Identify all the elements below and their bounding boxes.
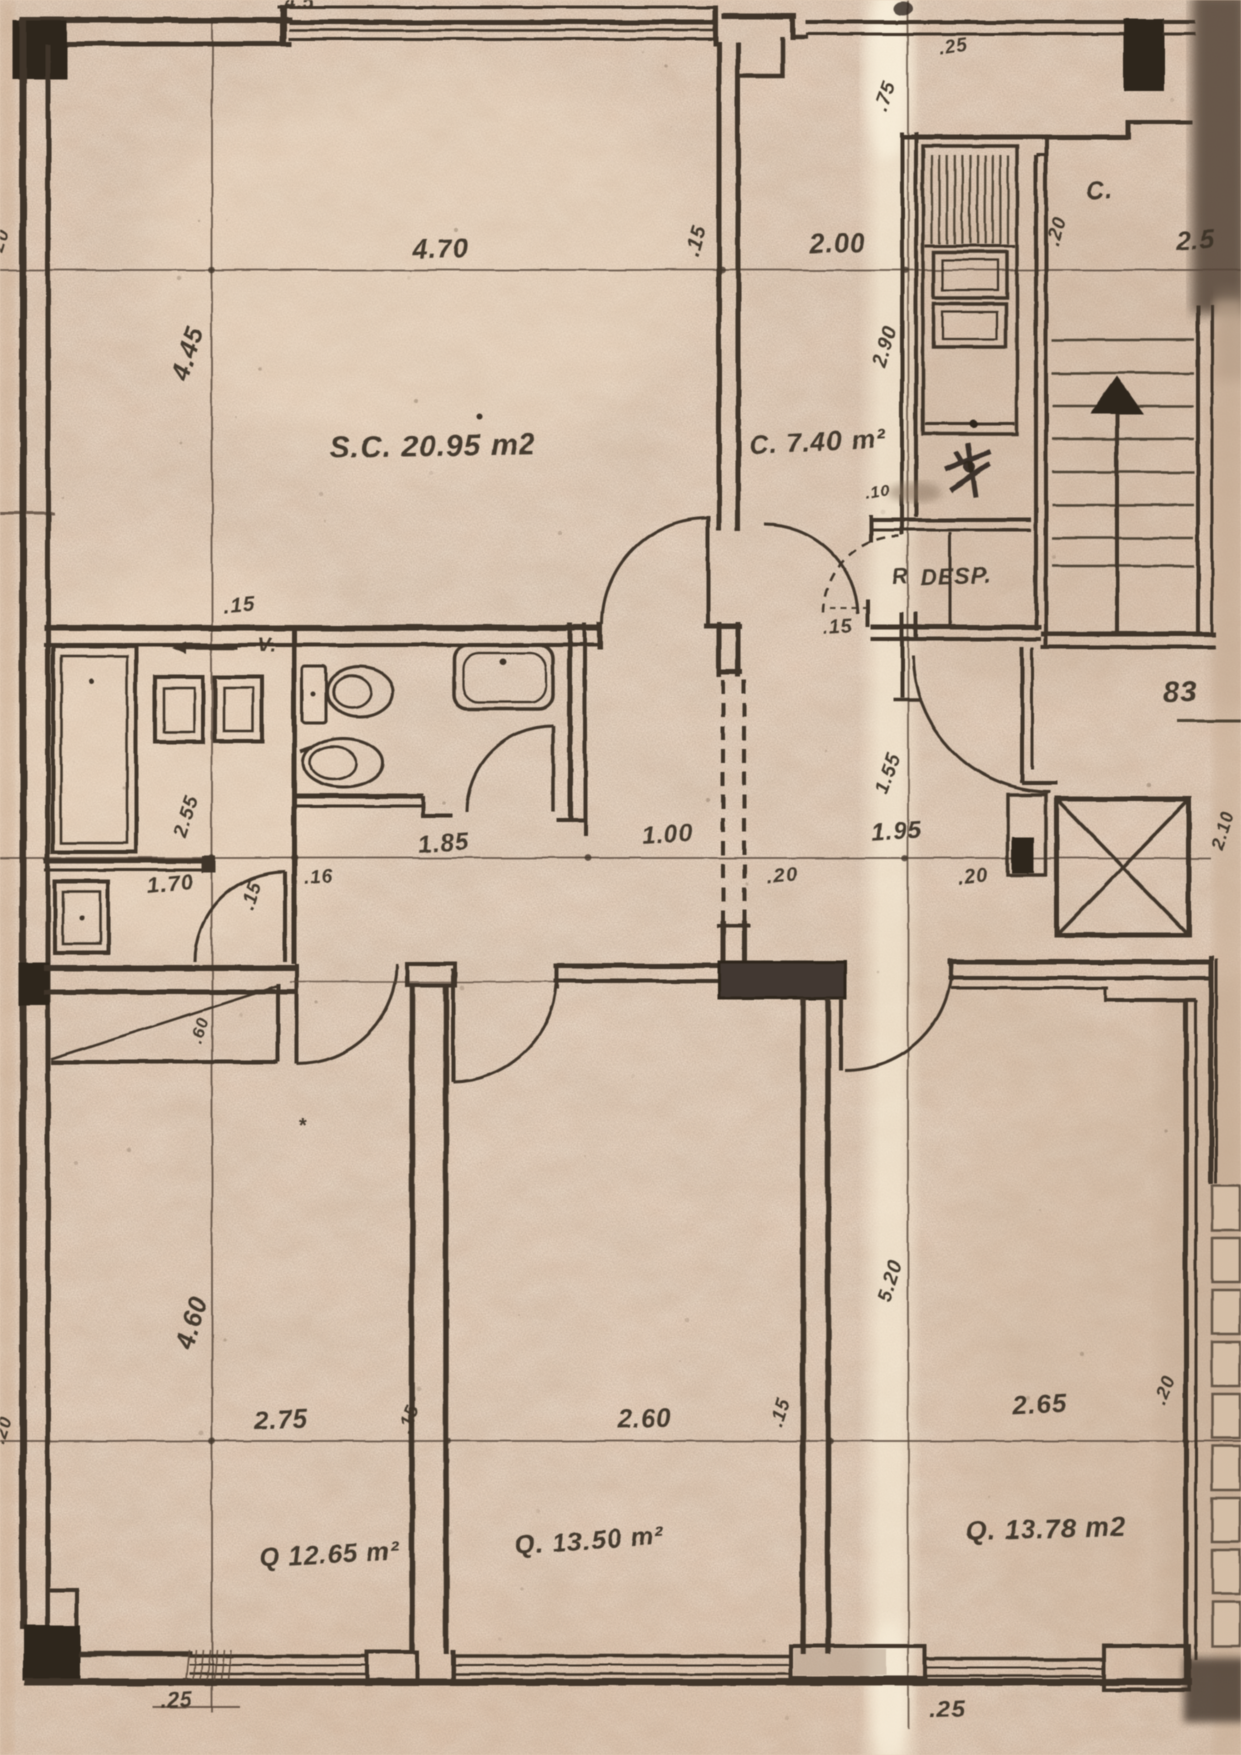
svg-text:.15: .15 xyxy=(822,615,854,639)
svg-text:2.65: 2.65 xyxy=(1010,1388,1067,1421)
svg-text:2.75: 2.75 xyxy=(252,1403,309,1435)
svg-text:R: R xyxy=(892,563,910,589)
svg-text:.25: .25 xyxy=(937,34,969,59)
svg-text:4.5: 4.5 xyxy=(283,0,316,14)
svg-text:Q. 13.78 m2: Q. 13.78 m2 xyxy=(965,1511,1127,1547)
svg-text:.25: .25 xyxy=(159,1686,194,1713)
svg-text:V.: V. xyxy=(257,635,276,657)
svg-text:83: 83 xyxy=(1162,675,1199,710)
svg-text:2.60: 2.60 xyxy=(616,1402,673,1434)
svg-text:2.5: 2.5 xyxy=(1174,224,1216,256)
svg-text:*: * xyxy=(299,1115,308,1137)
svg-text:4.70: 4.70 xyxy=(411,233,470,265)
svg-text:S.C. 20.95 m2: S.C. 20.95 m2 xyxy=(329,428,536,465)
svg-text:.15: .15 xyxy=(223,593,257,618)
svg-text:1.70: 1.70 xyxy=(146,869,195,899)
svg-text:C.: C. xyxy=(1085,176,1114,206)
svg-text:.16: .16 xyxy=(303,866,334,889)
svg-text:.20: .20 xyxy=(957,865,990,890)
svg-text:1.00: 1.00 xyxy=(642,820,694,850)
svg-text:2.00: 2.00 xyxy=(808,227,867,259)
svg-text:.25: .25 xyxy=(929,1695,966,1723)
svg-text:DESP.: DESP. xyxy=(920,562,992,590)
svg-text:1.95: 1.95 xyxy=(870,816,922,846)
svg-text:.20: .20 xyxy=(766,864,799,889)
svg-text:1.85: 1.85 xyxy=(417,828,469,858)
